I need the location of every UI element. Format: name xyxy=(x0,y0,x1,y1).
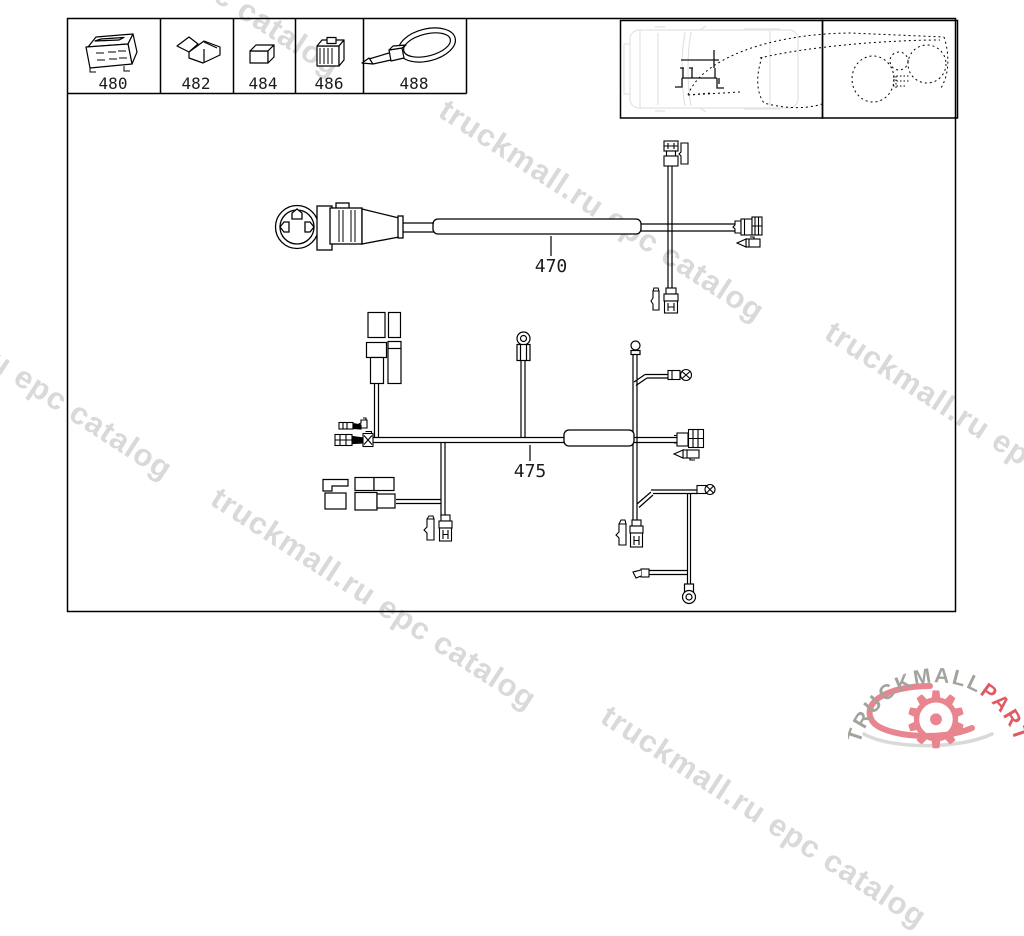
truck-thumb-border xyxy=(621,21,823,119)
boot-taper xyxy=(362,209,399,244)
sleeve-parts-upper xyxy=(367,313,402,384)
ring-terminal-bottom xyxy=(683,584,696,604)
terminal-inline xyxy=(633,569,649,578)
part-cell-484[interactable]: 484 xyxy=(249,45,278,93)
part-cell-486[interactable]: 486 xyxy=(315,38,344,94)
terminal-spade-x xyxy=(697,485,715,495)
truck-top-view-outline xyxy=(624,26,798,112)
hook-terminal xyxy=(631,341,640,355)
connector-body xyxy=(330,208,362,244)
harness-475: 475 xyxy=(323,313,715,604)
truck-location-thumbnail[interactable] xyxy=(624,26,798,112)
diagram-frame xyxy=(68,19,958,612)
harness-label-470[interactable]: 470 xyxy=(535,256,568,277)
terminal-group-bottom xyxy=(651,288,678,313)
terminal-group-x635 xyxy=(616,520,643,547)
epc-catalog-page: { "diagram": { "parts_row": [ {"number":… xyxy=(0,0,1024,750)
harness-label-475[interactable]: 475 xyxy=(514,461,547,482)
harness-diagram: 480 482 484 486 xyxy=(0,0,1024,750)
headlamp-thumbnail[interactable] xyxy=(688,33,948,108)
part-number-488[interactable]: 488 xyxy=(400,74,429,93)
harness-sleeve xyxy=(433,219,641,234)
part-cell-482[interactable]: 482 xyxy=(177,37,220,93)
terminal-group-main-right xyxy=(674,430,704,461)
part-number-482[interactable]: 482 xyxy=(182,74,211,93)
sleeve-parts-lower xyxy=(323,478,395,511)
part-number-480[interactable]: 480 xyxy=(99,74,128,93)
part-cell-480[interactable]: 480 xyxy=(86,34,137,93)
ring-terminal xyxy=(517,332,530,361)
terminal-group-top xyxy=(664,141,688,166)
terminal-group-left xyxy=(335,418,373,447)
harness-470: 470 xyxy=(276,141,763,313)
part-number-484[interactable]: 484 xyxy=(249,74,278,93)
part-number-486[interactable]: 486 xyxy=(315,74,344,93)
terminal-ring-x xyxy=(668,370,692,381)
truckmall-parts-logo: ⚙ TRUCKMALLPARTS xyxy=(848,644,1024,750)
harness-sleeve xyxy=(564,430,634,446)
terminal-group-right xyxy=(733,217,762,247)
terminal-group-x443 xyxy=(424,515,452,541)
part-cell-488[interactable]: 488 xyxy=(362,22,459,93)
